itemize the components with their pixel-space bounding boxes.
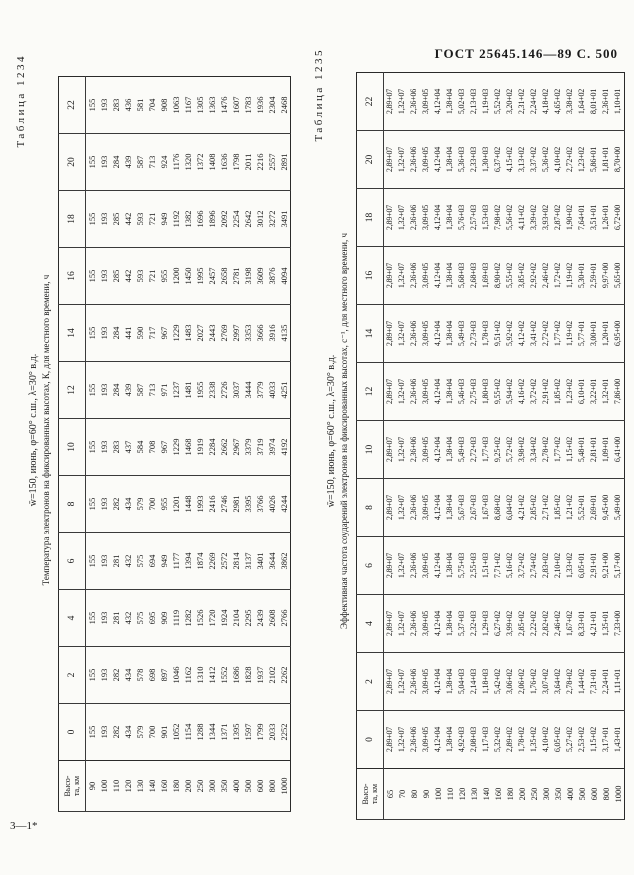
table-1234-label: Таблица 1234 [15, 54, 27, 148]
value-cell: 5,42+02 [492, 653, 504, 711]
altitude-label: 250 [528, 769, 540, 820]
value-cell: 1,19+02 [564, 247, 576, 305]
value-cell: 4,12+04 [432, 73, 444, 131]
value-cell: 2092 [218, 191, 230, 248]
altitude-label: 250 [194, 761, 206, 812]
value-cell: 4251 [278, 362, 291, 419]
value-cell: 2,46+02 [540, 247, 552, 305]
value-cell: 2981 [230, 476, 242, 533]
table-row: 8002033210226083644402639744033391638763… [266, 77, 278, 812]
local-time-header: 14 [357, 305, 384, 363]
value-cell: 2,89+07 [384, 421, 397, 479]
value-cell: 2295 [242, 590, 254, 647]
value-cell: 1412 [206, 647, 218, 704]
value-cell: 1,51+03 [480, 537, 492, 595]
value-cell: 2,36+01 [600, 73, 612, 131]
value-cell: 1936 [254, 77, 266, 134]
value-cell: 283 [110, 77, 122, 134]
value-cell: 1,78+03 [480, 305, 492, 363]
altitude-label: 80 [408, 769, 420, 820]
altitude-label: 800 [600, 769, 612, 820]
value-cell: 1,18+03 [480, 653, 492, 711]
value-cell: 1,53+03 [480, 189, 492, 247]
value-cell: 2269 [206, 533, 218, 590]
value-cell: 1,77+02 [552, 421, 564, 479]
value-cell: 3644 [266, 533, 278, 590]
value-cell: 5,27+02 [564, 711, 576, 769]
value-cell: 155 [86, 647, 99, 704]
value-cell: 6,72+00 [612, 189, 625, 247]
value-cell: 2642 [242, 191, 254, 248]
value-cell: 1,38+04 [444, 479, 456, 537]
value-cell: 2,24+02 [528, 73, 540, 131]
value-cell: 4,12+04 [432, 711, 444, 769]
value-cell: 5,37+03 [456, 595, 468, 653]
value-cell: 9,25+02 [492, 421, 504, 479]
value-cell: 4,10+02 [552, 131, 564, 189]
value-cell: 5,94+02 [504, 363, 516, 421]
value-cell: 4,10+02 [540, 711, 552, 769]
value-cell: 1363 [206, 77, 218, 134]
value-cell: 1,77+02 [552, 305, 564, 363]
value-cell: 713 [146, 362, 158, 419]
value-cell: 1,17+03 [480, 711, 492, 769]
value-cell: 6,37+02 [492, 131, 504, 189]
value-cell: 2,71+02 [540, 479, 552, 537]
value-cell: 1119 [170, 590, 182, 647]
value-cell: 1288 [194, 704, 206, 761]
value-cell: 3916 [266, 305, 278, 362]
value-cell: 3379 [242, 419, 254, 476]
value-cell: 1162 [182, 647, 194, 704]
value-cell: 924 [158, 134, 170, 191]
value-cell: 5,36+02 [540, 131, 552, 189]
value-cell: 193 [98, 419, 110, 476]
local-time-header: 6 [59, 533, 86, 590]
local-time-header: 16 [59, 248, 86, 305]
table-row: 3501371155219242572274626622726276926582… [218, 77, 230, 812]
value-cell: 1,67+03 [480, 479, 492, 537]
value-cell: 1,20+01 [600, 305, 612, 363]
value-cell: 193 [98, 590, 110, 647]
value-cell: 193 [98, 647, 110, 704]
table-row: 1605,32+025,42+026,27+027,71+028,68+029,… [492, 73, 504, 820]
value-cell: 9,51+02 [492, 305, 504, 363]
value-cell: 3,09+05 [420, 537, 432, 595]
table-1234-title: Температура электронов на фиксированных … [41, 44, 51, 816]
value-cell: 3,34+02 [528, 421, 540, 479]
value-cell: 4,12+04 [432, 595, 444, 653]
table-row: 3004,10+023,07+022,82+022,83+022,71+022,… [540, 73, 552, 820]
value-cell: 2,08+03 [468, 711, 480, 769]
value-cell: 1483 [182, 305, 194, 362]
value-cell: 3,64+02 [552, 653, 564, 711]
value-cell: 3,13+02 [516, 131, 528, 189]
value-cell: 578 [134, 647, 146, 704]
value-cell: 284 [110, 134, 122, 191]
local-time-header: 14 [59, 305, 86, 362]
value-cell: 949 [158, 191, 170, 248]
altitude-label: 140 [146, 761, 158, 812]
altitude-label: 300 [540, 769, 552, 820]
value-cell: 5,48+01 [576, 421, 588, 479]
value-cell: 3,41+02 [528, 305, 540, 363]
table-row: 4005,27+022,78+021,67+021,33+021,21+021,… [564, 73, 576, 820]
altitude-label: 1000 [278, 761, 291, 812]
value-cell: 5,67+03 [456, 479, 468, 537]
altitude-label: 130 [134, 761, 146, 812]
value-cell: 967 [158, 305, 170, 362]
value-cell: 6,05+01 [576, 537, 588, 595]
table-1235-title: Эффективная частота соударений электроно… [339, 38, 350, 824]
table-row: 1801052104611191177120112291237122912001… [170, 77, 182, 812]
local-time-header: 8 [59, 476, 86, 533]
value-cell: 2891 [278, 134, 291, 191]
value-cell: 4,12+04 [432, 131, 444, 189]
table-1235-label: Таблица 1235 [313, 48, 325, 142]
value-cell: 282 [110, 647, 122, 704]
value-cell: 1,38+04 [444, 711, 456, 769]
table-row: 160901897909949955967971967955949924908 [158, 77, 170, 812]
value-cell: 5,16+02 [504, 537, 516, 595]
value-cell: 3876 [266, 248, 278, 305]
value-cell: 1,72+02 [552, 247, 564, 305]
value-cell: 1,32+07 [396, 73, 408, 131]
value-cell: 1607 [230, 77, 242, 134]
value-cell: 284 [110, 305, 122, 362]
value-cell: 4,12+04 [432, 479, 444, 537]
value-cell: 284 [110, 362, 122, 419]
value-cell: 5,72+02 [504, 421, 516, 479]
value-cell: 2102 [266, 647, 278, 704]
value-cell: 1,80+03 [480, 363, 492, 421]
value-cell: 2662 [218, 419, 230, 476]
value-cell: 1282 [182, 590, 194, 647]
value-cell: 1874 [194, 533, 206, 590]
value-cell: 439 [122, 134, 134, 191]
value-cell: 1310 [194, 647, 206, 704]
value-cell: 2,91+01 [588, 537, 600, 595]
local-time-header: 2 [357, 653, 384, 711]
value-cell: 441 [122, 305, 134, 362]
value-cell: 2304 [266, 77, 278, 134]
altitude-label: 90 [86, 761, 99, 812]
value-cell: 1372 [194, 134, 206, 191]
value-cell: 2,81+01 [588, 421, 600, 479]
value-cell: 1408 [206, 134, 218, 191]
altitude-label: 180 [170, 761, 182, 812]
value-cell: 1371 [218, 704, 230, 761]
value-cell: 1552 [218, 647, 230, 704]
table-row: 1802,89+023,06+023,99+025,16+026,04+025,… [504, 73, 516, 820]
value-cell: 1,32+07 [396, 537, 408, 595]
value-cell: 5,17+00 [612, 537, 625, 595]
altitude-label: 500 [576, 769, 588, 820]
header-row: Высо-та, км0246810121416182022 [357, 73, 384, 820]
altitude-label: 70 [396, 769, 408, 820]
table-row: 140700698695694700708713717721721713704 [146, 77, 158, 812]
value-cell: 2,24+01 [600, 653, 612, 711]
local-time-header: 12 [59, 362, 86, 419]
value-cell: 1,69+03 [480, 247, 492, 305]
local-time-header: 10 [59, 419, 86, 476]
value-cell: 2,36+06 [408, 595, 420, 653]
value-cell: 2,36+06 [408, 189, 420, 247]
value-cell: 8,90+02 [492, 247, 504, 305]
value-cell: 3,22+01 [588, 363, 600, 421]
value-cell: 3,09+05 [420, 73, 432, 131]
value-cell: 2608 [266, 590, 278, 647]
value-cell: 5,52+02 [492, 73, 504, 131]
value-cell: 2216 [254, 134, 266, 191]
value-cell: 579 [134, 476, 146, 533]
value-cell: 5,75+03 [456, 537, 468, 595]
header-row: Высо-та, км0246810121416182022 [59, 77, 86, 812]
value-cell: 1,35+02 [528, 711, 540, 769]
table-row: 4001395168621042814298129673037299727812… [230, 77, 242, 812]
value-cell: 4,15+02 [504, 131, 516, 189]
value-cell: 7,33+00 [612, 595, 625, 653]
value-cell: 155 [86, 704, 99, 761]
value-cell: 1686 [230, 647, 242, 704]
value-cell: 2,75+03 [468, 363, 480, 421]
value-cell: 3491 [278, 191, 291, 248]
value-cell: 3137 [242, 533, 254, 590]
value-cell: 1,32+07 [396, 305, 408, 363]
value-cell: 897 [158, 647, 170, 704]
value-cell: 4,21+02 [516, 479, 528, 537]
table-row: 5002,53+021,44+028,33+016,05+015,52+015,… [576, 73, 588, 820]
altitude-label: 140 [480, 769, 492, 820]
value-cell: 2766 [278, 590, 291, 647]
value-cell: 193 [98, 362, 110, 419]
value-cell: 1200 [170, 248, 182, 305]
table-row: 110282282281281282283284284285285284283 [110, 77, 122, 812]
value-cell: 3,07+02 [540, 653, 552, 711]
table-row: 100193193193193193193193193193193193193 [98, 77, 110, 812]
value-cell: 1,78+02 [516, 711, 528, 769]
value-cell: 2,89+07 [384, 247, 397, 305]
value-cell: 282 [110, 476, 122, 533]
value-cell: 1,32+07 [396, 421, 408, 479]
value-cell: 717 [146, 305, 158, 362]
value-cell: 4,92+03 [456, 711, 468, 769]
value-cell: 1,15+02 [588, 711, 600, 769]
value-cell: 3666 [254, 305, 266, 362]
value-cell: 5,65+00 [612, 247, 625, 305]
value-cell: 700 [146, 704, 158, 761]
printers-signature-mark: 3—1* [10, 820, 38, 832]
value-cell: 7,31+01 [588, 653, 600, 711]
value-cell: 1,32+07 [396, 363, 408, 421]
value-cell: 155 [86, 248, 99, 305]
value-cell: 2,22+02 [528, 595, 540, 653]
table-row: 130579578575575579584587590593593587581 [134, 77, 146, 812]
value-cell: 1154 [182, 704, 194, 761]
value-cell: 2,32+03 [468, 595, 480, 653]
value-cell: 1955 [194, 362, 206, 419]
value-cell: 3,93+02 [540, 189, 552, 247]
value-cell: 432 [122, 590, 134, 647]
value-cell: 3,09+05 [420, 421, 432, 479]
value-cell: 1,38+04 [444, 363, 456, 421]
value-cell: 2997 [230, 305, 242, 362]
table-row: 652,89+072,89+072,89+072,89+072,89+072,8… [384, 73, 397, 820]
value-cell: 1,33+02 [564, 537, 576, 595]
value-cell: 1468 [182, 419, 194, 476]
value-cell: 5,77+01 [576, 305, 588, 363]
local-time-header: 12 [357, 363, 384, 421]
value-cell: 1919 [194, 419, 206, 476]
value-cell: 698 [146, 647, 158, 704]
value-cell: 3,09+05 [420, 305, 432, 363]
value-cell: 3,06+02 [504, 653, 516, 711]
value-cell: 2457 [206, 248, 218, 305]
value-cell: 708 [146, 419, 158, 476]
altitude-label: 800 [266, 761, 278, 812]
value-cell: 3719 [254, 419, 266, 476]
value-cell: 2,74+02 [528, 537, 540, 595]
value-cell: 4,12+04 [432, 305, 444, 363]
value-cell: 2,78+02 [540, 421, 552, 479]
value-cell: 1526 [194, 590, 206, 647]
value-cell: 2,59+01 [588, 247, 600, 305]
table-row: 802,36+062,36+062,36+062,36+062,36+062,3… [408, 73, 420, 820]
table-row: 90155155155155155155155155155155155155 [86, 77, 99, 812]
value-cell: 7,64+01 [576, 189, 588, 247]
value-cell: 439 [122, 362, 134, 419]
table-row: 10001,43+011,11+017,33+005,17+005,49+006… [612, 73, 625, 820]
table-row: 1204,92+035,04+035,37+035,75+035,67+035,… [456, 73, 468, 820]
value-cell: 2,36+06 [408, 653, 420, 711]
value-cell: 1192 [170, 191, 182, 248]
value-cell: 1382 [182, 191, 194, 248]
value-cell: 2,31+02 [516, 73, 528, 131]
value-cell: 575 [134, 590, 146, 647]
value-cell: 2,72+03 [468, 421, 480, 479]
value-cell: 1052 [170, 704, 182, 761]
value-cell: 1177 [170, 533, 182, 590]
value-cell: 8,01+01 [588, 73, 600, 131]
table-row: 1101,38+041,38+041,38+041,38+041,38+041,… [444, 73, 456, 820]
value-cell: 155 [86, 419, 99, 476]
value-cell: 584 [134, 419, 146, 476]
altitude-label: 400 [230, 761, 242, 812]
altitude-label: 110 [444, 769, 456, 820]
value-cell: 1,85+02 [552, 363, 564, 421]
value-cell: 2443 [206, 305, 218, 362]
value-cell: 2,67+03 [468, 479, 480, 537]
value-cell: 1,85+02 [552, 479, 564, 537]
value-cell: 1,23+02 [564, 363, 576, 421]
value-cell: 1,76+02 [528, 653, 540, 711]
value-cell: 3,72+02 [528, 363, 540, 421]
value-cell: 2,36+06 [408, 421, 420, 479]
value-cell: 1783 [242, 77, 254, 134]
value-cell: 1,30+03 [480, 131, 492, 189]
value-cell: 694 [146, 533, 158, 590]
value-cell: 1,11+01 [612, 653, 625, 711]
value-cell: 1993 [194, 476, 206, 533]
value-cell: 593 [134, 191, 146, 248]
value-cell: 4,12+04 [432, 363, 444, 421]
value-cell: 2746 [218, 476, 230, 533]
value-cell: 3,09+05 [420, 653, 432, 711]
value-cell: 2,69+01 [588, 479, 600, 537]
value-cell: 4,21+01 [588, 595, 600, 653]
value-cell: 281 [110, 590, 122, 647]
altitude-label: 200 [182, 761, 194, 812]
value-cell: 4244 [278, 476, 291, 533]
value-cell: 2254 [230, 191, 242, 248]
value-cell: 442 [122, 248, 134, 305]
value-cell: 155 [86, 590, 99, 647]
table-row: 701,32+071,32+071,32+071,32+071,32+071,3… [396, 73, 408, 820]
value-cell: 1046 [170, 647, 182, 704]
value-cell: 5,52+01 [576, 479, 588, 537]
value-cell: 3,51+01 [588, 189, 600, 247]
value-cell: 575 [134, 533, 146, 590]
local-time-header: 6 [357, 537, 384, 595]
value-cell: 1,26+01 [600, 189, 612, 247]
table-1234-conditions: w̄=150, июнь, φ=60° с.ш., λ=30° в.д. [28, 44, 39, 816]
value-cell: 2,36+06 [408, 131, 420, 189]
value-cell: 955 [158, 476, 170, 533]
value-cell: 2726 [218, 362, 230, 419]
value-cell: 2,89+07 [384, 537, 397, 595]
value-cell: 1,32+01 [600, 363, 612, 421]
value-cell: 5,46+03 [456, 363, 468, 421]
table-1234-rotated-strip: Таблица 1234 w̄=150, июнь, φ=60° с.ш., λ… [14, 44, 306, 816]
value-cell: 1167 [182, 77, 194, 134]
value-cell: 8,70+00 [612, 131, 625, 189]
value-cell: 2,36+06 [408, 479, 420, 537]
value-cell: 3,72+02 [516, 537, 528, 595]
value-cell: 5,92+02 [504, 305, 516, 363]
altitude-label: 100 [432, 769, 444, 820]
value-cell: 1063 [170, 77, 182, 134]
value-cell: 4192 [278, 419, 291, 476]
value-cell: 1636 [218, 134, 230, 191]
value-cell: 1,35+01 [600, 595, 612, 653]
local-time-header: 0 [59, 704, 86, 761]
value-cell: 2,33+03 [468, 131, 480, 189]
value-cell: 3974 [266, 419, 278, 476]
value-cell: 5,68+03 [456, 247, 468, 305]
value-cell: 2,91+02 [540, 363, 552, 421]
value-cell: 3353 [242, 305, 254, 362]
scanned-document-page: ГОСТ 25645.146—89 С. 500 3—1* Таблица 12… [0, 0, 634, 875]
altitude-label: 400 [564, 769, 576, 820]
value-cell: 2,87+02 [552, 189, 564, 247]
value-cell: 3,20+02 [504, 73, 516, 131]
value-cell: 5,76+03 [456, 189, 468, 247]
value-cell: 3037 [230, 362, 242, 419]
value-cell: 8,68+02 [492, 479, 504, 537]
value-cell: 155 [86, 362, 99, 419]
value-cell: 700 [146, 476, 158, 533]
altitude-label: 120 [122, 761, 134, 812]
value-cell: 949 [158, 533, 170, 590]
value-cell: 1,38+04 [444, 131, 456, 189]
value-cell: 155 [86, 191, 99, 248]
value-cell: 2,82+02 [540, 595, 552, 653]
value-cell: 1,38+04 [444, 247, 456, 305]
value-cell: 1,32+07 [396, 247, 408, 305]
value-cell: 3401 [254, 533, 266, 590]
value-cell: 3779 [254, 362, 266, 419]
value-cell: 2416 [206, 476, 218, 533]
